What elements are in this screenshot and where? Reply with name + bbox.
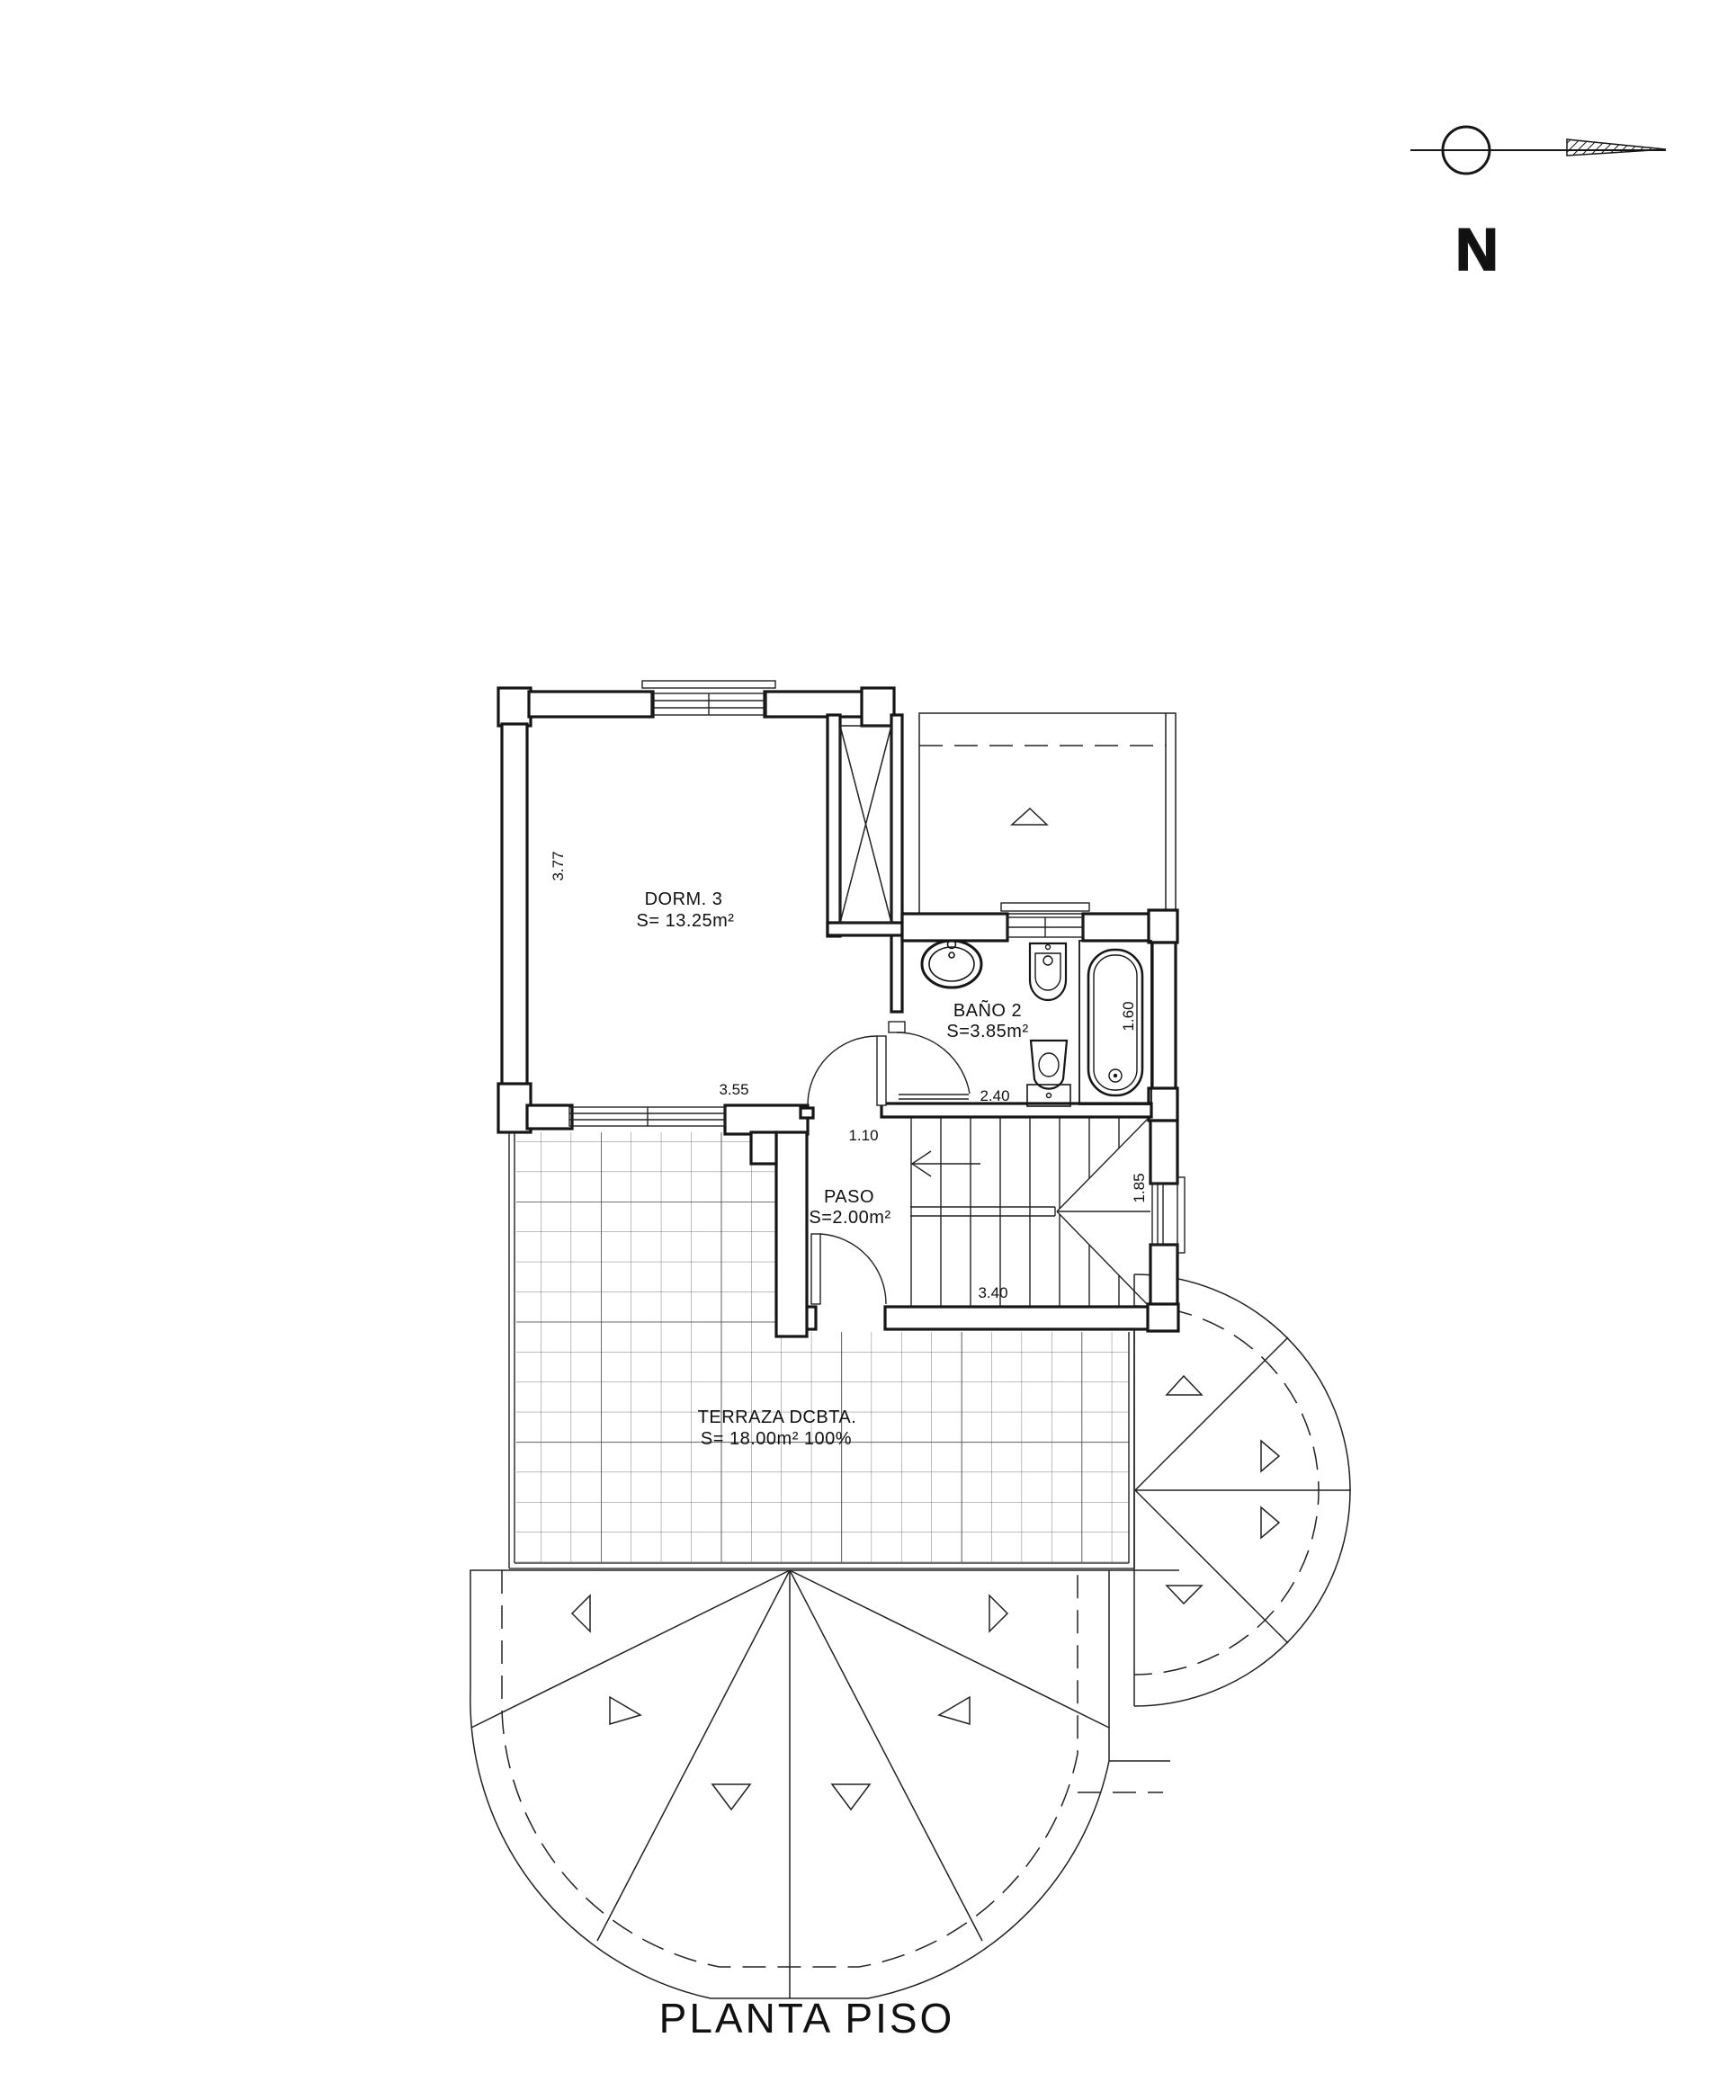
- room-dorm3-name: DORM. 3: [645, 889, 723, 909]
- roof-slope-triangle-down: [1167, 1586, 1202, 1604]
- room-paso-area: S=2.00m²: [809, 1208, 890, 1228]
- wall-pillar: [498, 688, 531, 726]
- dim-stair-window: 1.85: [1131, 1173, 1148, 1202]
- north-letter: N: [1455, 216, 1499, 282]
- roof-slope-triangle-right: [1261, 1507, 1279, 1538]
- window-dorm3-bottom: [569, 1107, 725, 1126]
- room-paso-name: PASO: [824, 1187, 874, 1207]
- room-bano2-area: S=3.85m²: [946, 1022, 1028, 1041]
- roof-slope-triangle-right: [1261, 1441, 1279, 1471]
- dim-stair-width: 3.40: [978, 1284, 1007, 1301]
- roof-slope-triangle-up: [1167, 1376, 1202, 1395]
- wall-pillar: [751, 1132, 776, 1164]
- roof-lower-fan: [470, 1570, 1179, 1998]
- window-dorm3-top: [642, 681, 775, 715]
- roof-slope-triangle-up: [1012, 809, 1047, 825]
- bidet: [1030, 943, 1066, 1000]
- roof-upper-right: [919, 713, 1176, 914]
- wall-pillar: [862, 688, 894, 726]
- roof-slope-triangle-left: [572, 1595, 590, 1631]
- room-dorm3-area: S= 13.25m²: [637, 911, 735, 931]
- dim-bano2-width: 2.40: [980, 1087, 1009, 1104]
- page-title: PLANTA PISO: [659, 1995, 955, 2042]
- toilet: [1027, 1041, 1070, 1106]
- roof-slope-triangle-down: [832, 1784, 870, 1810]
- floor-plan-svg: N DORM. 3 S= 13.25m² BAÑO 2 S=3.85m² PAS…: [0, 0, 1736, 2100]
- roof-right-semicircle: [1134, 1274, 1351, 1706]
- dim-bath-length: 1.60: [1120, 1001, 1137, 1031]
- dim-paso-door: 1.10: [848, 1127, 878, 1144]
- roof-slope-triangle-right: [989, 1595, 1007, 1631]
- doors: [808, 1022, 970, 1304]
- room-terraza-area: S= 18.00m² 100%: [701, 1429, 852, 1449]
- dim-dorm3-width: 3.55: [719, 1081, 748, 1098]
- roof-slope-triangle-right: [610, 1697, 640, 1724]
- roof-slope-triangle-left: [939, 1697, 970, 1724]
- north-arrow: N: [1410, 127, 1666, 282]
- room-terraza-name: TERRAZA DCBTA.: [698, 1407, 857, 1427]
- bathtub: [1079, 941, 1151, 1104]
- wall-pillar: [1149, 910, 1177, 943]
- roof-slope-triangle-down: [712, 1784, 750, 1810]
- plan-sheet: N DORM. 3 S= 13.25m² BAÑO 2 S=3.85m² PAS…: [0, 0, 1736, 2100]
- door-paso-top: [808, 1036, 886, 1105]
- window-stair: [1152, 1177, 1185, 1253]
- window-bathroom: [1001, 903, 1089, 937]
- shaft-xbox: [840, 726, 891, 923]
- sink: [922, 941, 981, 988]
- dim-dorm3-height: 3.77: [550, 851, 567, 880]
- staircase: [910, 1118, 1150, 1306]
- wall-pillar: [1149, 1088, 1177, 1121]
- room-bano2-name: BAÑO 2: [953, 999, 1022, 1021]
- terrace-tiled-floor: [509, 1132, 1134, 1568]
- north-arrow-head: [1567, 139, 1666, 156]
- door-paso-terrace: [811, 1234, 886, 1304]
- wall-pillar: [1148, 1304, 1178, 1331]
